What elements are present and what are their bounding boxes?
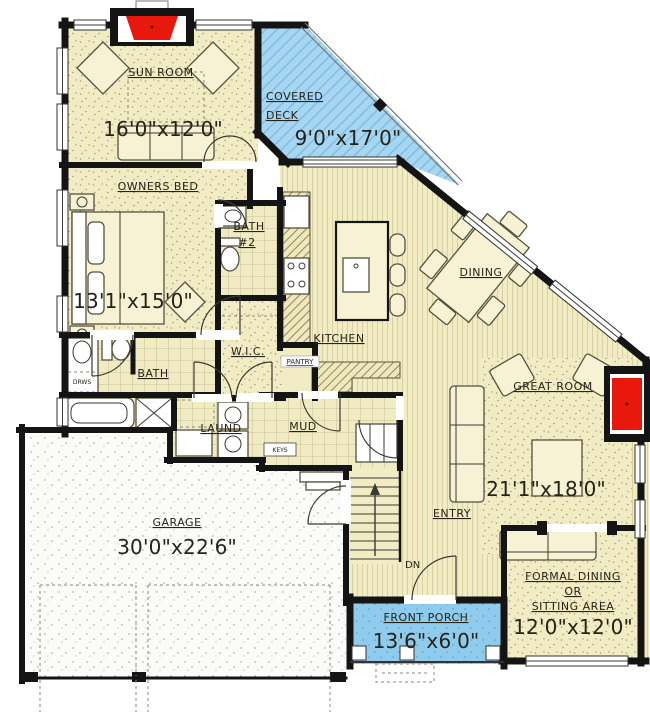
toilet [221,247,239,271]
label-bath: BATH [137,367,168,380]
dim-front-porch: 13'6"x6'0" [373,629,480,653]
garage-step [300,472,344,482]
label-kitchen: KITCHEN [313,332,364,345]
dim-great-room: 21'1"x18'0" [486,477,606,501]
pantry-floor [283,348,315,398]
label-sun-room: SUN ROOM [128,66,193,79]
label-entry: ENTRY [433,507,471,520]
stool [390,264,405,286]
label-pantry: PANTRY [287,358,314,366]
fridge [284,196,309,228]
label-garage: GARAGE [152,516,201,529]
pillow [88,222,104,264]
garage-step [306,482,340,490]
kitchen-island [336,222,405,320]
label-dining: DINING [460,266,503,279]
label-keys: KEYS [272,447,287,454]
label-owners-bed: OWNERS BED [118,180,199,193]
label-formal-dining-3: SITTING AREA [532,600,615,613]
label-front-porch: FRONT PORCH [384,611,469,624]
label-formal-dining-1: FORMAL DINING [525,570,621,583]
label-formal-dining-2: OR [564,585,581,598]
sofa [450,386,484,502]
label-mud: MUD [289,420,317,433]
stool [390,294,405,316]
nightstand [70,194,94,210]
range [284,258,309,294]
dim-owners-bed: 13'1"x15'0" [73,289,193,313]
column [607,521,617,535]
dim-covered-deck: 9'0"x17'0" [295,126,402,150]
label-drws: DRWS [73,379,91,386]
column [537,521,547,535]
dim-sun-room: 16'0"x12'0" [103,117,223,141]
label-bath2-2: #2 [238,236,255,249]
porch-column [352,646,366,660]
dim-garage: 30'0"x22'6" [117,535,237,559]
label-bath2-1: BATH [233,220,264,233]
dryer [218,431,248,458]
label-laundry: LAUND [200,422,241,435]
toilet-tank [102,338,112,360]
label-great-room: GREAT ROOM [513,380,592,393]
stool [390,234,405,256]
great-room-fireplace [604,366,650,442]
floor-plan: SUN ROOM 16'0"x12'0" COVERED DECK 9'0"x1… [0,0,650,717]
label-covered-deck-1: COVERED [266,90,323,103]
label-covered-deck-2: DECK [266,109,299,122]
label-dn: DN [405,560,420,571]
toilet-tank [220,238,240,246]
porch-column [486,646,500,660]
dim-formal-dining: 12'0"x12'0" [513,615,633,639]
island-sink [343,258,369,292]
sun-room-fireplace [110,1,194,46]
label-wic: W.I.C. [231,345,265,358]
